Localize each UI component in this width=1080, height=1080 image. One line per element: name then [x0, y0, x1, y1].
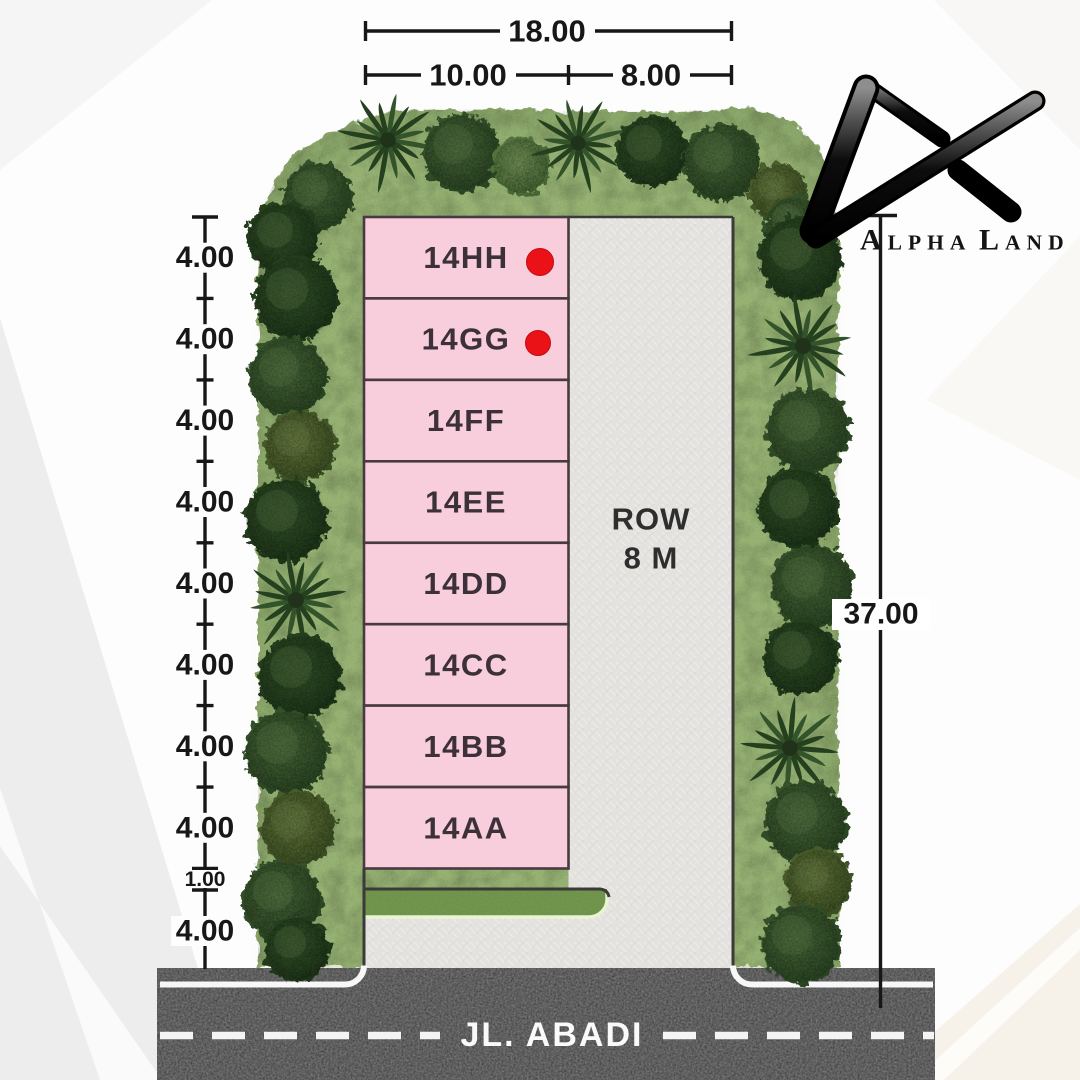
svg-text:10.00: 10.00 [429, 58, 507, 93]
svg-text:4.00: 4.00 [176, 811, 234, 844]
svg-text:8.00: 8.00 [621, 58, 681, 93]
svg-text:4.00: 4.00 [176, 915, 234, 948]
svg-text:14AA: 14AA [423, 810, 508, 845]
svg-text:4.00: 4.00 [176, 486, 234, 519]
svg-text:ROW: ROW [612, 502, 691, 537]
svg-text:4.00: 4.00 [176, 648, 234, 681]
svg-text:14HH: 14HH [423, 240, 508, 275]
svg-text:18.00: 18.00 [508, 14, 586, 49]
svg-text:4.00: 4.00 [176, 404, 234, 437]
svg-text:8 M: 8 M [624, 541, 679, 576]
svg-text:14CC: 14CC [423, 647, 508, 682]
svg-text:14DD: 14DD [423, 566, 508, 601]
svg-text:14GG: 14GG [422, 322, 511, 357]
svg-text:14BB: 14BB [423, 729, 508, 764]
svg-text:37.00: 37.00 [843, 598, 918, 631]
svg-text:4.00: 4.00 [176, 730, 234, 763]
svg-text:4.00: 4.00 [176, 241, 234, 274]
svg-text:14EE: 14EE [425, 485, 507, 520]
svg-text:JL. ABADI: JL. ABADI [461, 1016, 644, 1054]
svg-text:4.00: 4.00 [176, 567, 234, 600]
svg-text:1.00: 1.00 [185, 868, 226, 891]
svg-text:14FF: 14FF [427, 403, 505, 438]
svg-text:4.00: 4.00 [176, 323, 234, 356]
